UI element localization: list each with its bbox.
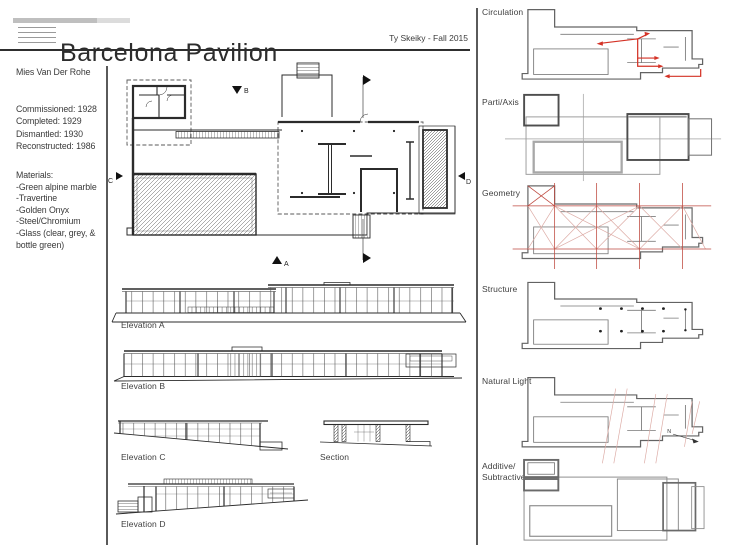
entry-stairs xyxy=(353,215,370,238)
section-marker-c: C xyxy=(108,172,123,185)
floor-plan: B A C D xyxy=(106,52,474,284)
main-roof-dashed xyxy=(278,122,423,214)
speedlines-logo-icon xyxy=(18,27,56,45)
massing-volumes xyxy=(524,460,704,540)
parti-axis-diagram xyxy=(505,92,723,182)
circulation-diagram xyxy=(505,6,715,90)
elevation-c-drawing xyxy=(112,414,290,454)
material-item: -Steel/Chromium xyxy=(16,216,108,228)
elevation-d-label: Elevation D xyxy=(121,519,166,529)
north-label: N xyxy=(667,429,671,435)
natural-light-diagram: N xyxy=(505,374,715,466)
materials-heading: Materials: xyxy=(16,170,108,182)
structure-column-dots xyxy=(599,307,687,332)
column-dots xyxy=(301,130,395,194)
date-completed: Completed: 1929 xyxy=(16,115,108,127)
large-pool xyxy=(133,174,256,235)
section-letter-c: C xyxy=(108,178,113,185)
small-pool xyxy=(419,126,455,214)
elevation-a-label: Elevation A xyxy=(121,320,165,330)
section-marker-d: D xyxy=(458,172,471,186)
elevation-b-label: Elevation B xyxy=(121,381,165,391)
header-accent-bar-dark xyxy=(13,18,97,23)
header-rule xyxy=(0,49,470,51)
elevation-c-label: Elevation C xyxy=(121,452,166,462)
geometry-diagram xyxy=(505,182,715,270)
project-dates: Commissioned: 1928 Completed: 1929 Disma… xyxy=(16,103,108,153)
courtyard xyxy=(282,63,332,117)
structure-diagram xyxy=(505,279,715,359)
main-pavilion-walls xyxy=(278,114,419,212)
section-label: Section xyxy=(320,452,349,462)
section-letter-b: B xyxy=(244,88,249,95)
date-commissioned: Commissioned: 1928 xyxy=(16,103,108,115)
service-building-walls xyxy=(133,86,185,118)
materials-list: Materials: -Green alpine marble -Travert… xyxy=(16,170,108,251)
section-marker-b: B xyxy=(232,86,249,95)
section-drawing xyxy=(318,416,434,452)
material-item: -Green alpine marble xyxy=(16,182,108,194)
elevation-d-drawing xyxy=(112,473,312,517)
material-item: -Glass (clear, grey, & bottle green) xyxy=(16,228,108,251)
date-reconstructed: Reconstructed: 1986 xyxy=(16,140,108,152)
section-marker-a: A xyxy=(272,256,289,268)
section-letter-d: D xyxy=(466,179,471,186)
material-item: -Travertine xyxy=(16,193,108,205)
long-wall-bench xyxy=(133,130,282,138)
right-column-divider xyxy=(476,8,478,545)
author-credit: Ty Skeiky - Fall 2015 xyxy=(330,33,468,43)
section-letter-a: A xyxy=(284,261,289,268)
material-item: -Golden Onyx xyxy=(16,205,108,217)
additive-subtractive-diagram xyxy=(505,458,705,542)
architect-name: Mies Van Der Rohe xyxy=(16,66,108,78)
presentation-board: Barcelona Pavilion Ty Skeiky - Fall 2015… xyxy=(0,0,736,552)
date-dismantled: Dismantled: 1930 xyxy=(16,128,108,140)
